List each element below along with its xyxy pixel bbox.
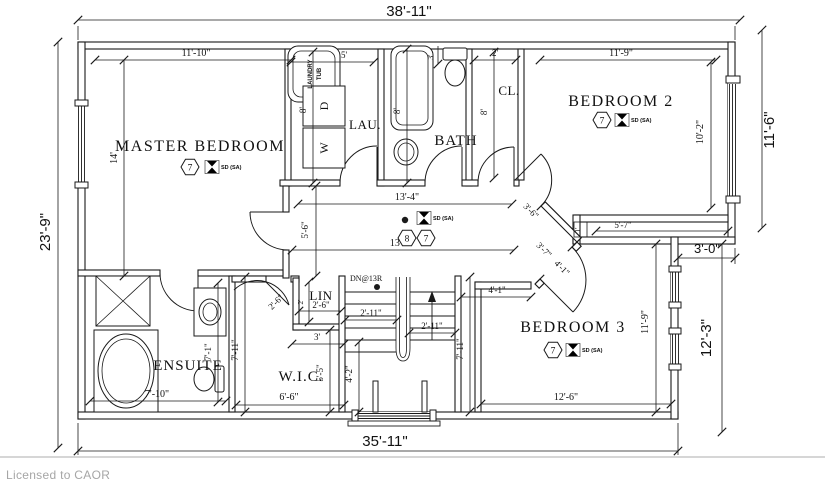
dim-ensuite-depth-2: 7'-11" (230, 339, 240, 361)
bed3-sd-label: SD (SA) (582, 348, 603, 354)
dim-bath-top: 3' (426, 54, 435, 60)
ensuite-door (160, 273, 198, 311)
bath-label: BATH (434, 133, 477, 149)
bed3-hex-number: 7 (551, 347, 556, 357)
dim-wall-sliver: 1' (573, 227, 582, 233)
dim-laundry-depth: 8' (298, 107, 308, 114)
dim-lower-width: 35'-11" (362, 433, 407, 450)
bath-door (425, 146, 462, 183)
dim-bed3-depth-int: 11'-9" (640, 310, 651, 334)
mb-smoke-detector: 7 SD (SA) (181, 159, 242, 175)
dim-wic-width: 6'-6" (279, 392, 298, 403)
floor-plan-drawing: 38'-11" 23'-9" 11'-6" 3'-0" 12'-3" 35'-1… (0, 0, 825, 484)
stair-down-marker (374, 284, 380, 290)
hall-sd-label: SD (SA) (433, 216, 454, 222)
dim-stair-upper-flight: 2'-11" (360, 308, 382, 318)
master-bedroom-door (250, 212, 288, 250)
stair-down-label: DN@13R (350, 274, 383, 283)
dim-bed2-depth-ext: 11'-6" (761, 111, 778, 148)
dim-overall-width: 38'-11" (386, 3, 431, 20)
closet-door (478, 147, 514, 183)
laundry-tub-label-1: LAUNDRY (308, 59, 314, 88)
bedroom2-window (726, 76, 740, 203)
staircase (345, 277, 455, 412)
dim-stair-side: 7'-11" (455, 338, 465, 360)
bed3-smoke-detector: 7 SD (SA) (544, 342, 603, 358)
bath-toilet (443, 48, 467, 86)
ensuite-label: ENSUITE (153, 358, 223, 374)
bath-sink (394, 139, 418, 165)
closet-label: CL. (498, 83, 519, 98)
bed2-hex-number: 7 (600, 117, 605, 127)
laundry-door (340, 146, 377, 183)
dim-wic-door: 2'-6" (266, 292, 286, 312)
laundry-label: LAU. (349, 117, 381, 132)
dim-bed3-width: 12'-6" (554, 392, 578, 403)
dim-bed3-top: 4'-1" (488, 285, 506, 295)
shower (96, 276, 150, 326)
dim-bed2-depth-int: 10'-2" (695, 120, 706, 144)
laundry-tub-label-2: TUB (317, 67, 323, 80)
dim-bed3-door: 4'-1" (552, 258, 572, 278)
bed2-sd-label: SD (SA) (631, 118, 652, 124)
hall-light-dot (402, 217, 408, 223)
dim-linen-depth: 2' (296, 299, 305, 305)
hall-hex7-number: 7 (424, 235, 429, 245)
wic-label: W.I.C. (278, 369, 323, 385)
dim-hall-width: 5'-6" (300, 221, 310, 239)
bed2-smoke-detector: 7 SD (SA) (593, 112, 652, 128)
floor-plan-page: 38'-11" 23'-9" 11'-6" 3'-0" 12'-3" 35'-1… (0, 0, 825, 484)
dim-bed3-depth-ext: 12'-3" (698, 319, 715, 357)
dim-ensuite-width: 7'-10" (145, 389, 169, 400)
mb-hex-number: 7 (188, 164, 193, 174)
fixtures (94, 46, 467, 412)
dim-angled-wall: 3'-7" (534, 240, 554, 260)
dim-hall-upper: 13'-4" (395, 192, 419, 203)
master-bedroom-window (75, 100, 88, 188)
linen-label: LIN (309, 288, 332, 303)
dim-bath-depth: 8' (392, 108, 402, 115)
dim-wall-jog: 3'-0" (694, 241, 720, 256)
dim-bed2-door: 3'-6" (521, 201, 541, 221)
dim-laundry-width: 5' (341, 50, 348, 60)
dim-bed2-bottom: 5'-7" (614, 220, 632, 230)
dim-mb-width: 11'-10" (182, 48, 211, 59)
master-bedroom-label: MASTER BEDROOM (115, 138, 285, 155)
hall-smoke-detector: SD (SA) 8 7 (398, 212, 454, 246)
washer-label: W (317, 142, 331, 154)
mb-sd-label: SD (SA) (221, 165, 242, 171)
license-text: Licensed to CAOR (6, 468, 110, 482)
bedroom2-label: BEDROOM 2 (568, 93, 674, 110)
dim-closet-depth: 8' (479, 109, 489, 116)
bedroom3-label: BEDROOM 3 (520, 319, 626, 336)
dim-closet-width: 2' (492, 48, 499, 58)
dim-bed2-width: 11'-9" (609, 48, 633, 59)
hall-hex8-number: 8 (405, 235, 410, 245)
dryer-label: D (317, 101, 331, 110)
dim-stair-run: 4'-2" (344, 365, 354, 383)
dim-overall-depth: 23'-9" (37, 213, 54, 251)
dim-stair-lower-flight: 2'-11" (421, 321, 443, 331)
dim-wic-opening: 3' (314, 332, 321, 342)
ensuite-sink (194, 288, 226, 336)
